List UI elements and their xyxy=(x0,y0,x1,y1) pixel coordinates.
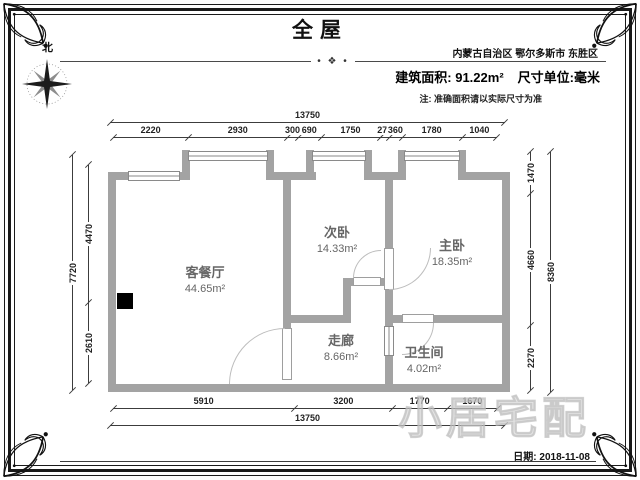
room-area: 14.33m² xyxy=(292,243,382,255)
dim-bottom-segments: 5910 3200 1770 1670 xyxy=(113,395,498,409)
unit-label: 尺寸单位:毫米 xyxy=(518,70,600,85)
dim-value: 2610 xyxy=(83,331,95,355)
window xyxy=(404,151,460,161)
dim-right-total: 8360 xyxy=(550,152,564,392)
room-area: 8.66m² xyxy=(300,351,382,363)
window xyxy=(188,151,268,161)
room-area: 4.02m² xyxy=(388,363,460,375)
wall xyxy=(291,315,343,323)
room-area: 18.35m² xyxy=(407,256,497,268)
room-label-corridor: 走廊 8.66m² xyxy=(300,330,382,363)
wall xyxy=(343,278,353,286)
room-label-master-bedroom: 主卧 18.35m² xyxy=(407,235,497,268)
wall xyxy=(393,315,402,323)
door-leaf xyxy=(402,314,434,323)
door-leaf xyxy=(353,277,381,286)
dim-top-segments: 2220 2930 300 690 1750 270 360 1780 1040 xyxy=(113,124,497,138)
wall xyxy=(343,286,351,323)
divider-line xyxy=(355,61,606,62)
dim-bottom-total: 13750 xyxy=(110,412,505,426)
dim-top-total: 13750 xyxy=(110,109,505,123)
dim-value: 13750 xyxy=(294,110,321,120)
wall xyxy=(385,180,393,248)
dim-value: 4660 xyxy=(525,248,537,272)
wall xyxy=(434,315,502,323)
dim-value: 2220 xyxy=(140,125,162,135)
wall xyxy=(283,180,291,328)
dim-value: 1770 xyxy=(409,396,431,406)
dim-value: 4470 xyxy=(83,222,95,246)
room-name: 卫生间 xyxy=(388,342,460,361)
title-divider: • ❖ • xyxy=(60,55,606,67)
dim-value: 1470 xyxy=(525,161,537,185)
dim-value: 3200 xyxy=(332,396,354,406)
dim-value: 5910 xyxy=(193,396,215,406)
corner-flourish-icon xyxy=(582,2,638,58)
corner-flourish-icon xyxy=(2,422,58,478)
room-name: 走廊 xyxy=(300,330,382,349)
wall xyxy=(108,172,116,392)
building-area-value: 建筑面积: 91.22m² xyxy=(395,70,503,85)
dim-value: 7720 xyxy=(67,260,79,284)
room-label-second-bedroom: 次卧 14.33m² xyxy=(292,222,382,255)
room-name: 主卧 xyxy=(407,235,497,254)
dim-value: 13750 xyxy=(294,413,321,423)
compass-rose-icon xyxy=(19,56,75,112)
room-label-living-dining: 客餐厅 44.65m² xyxy=(155,262,255,295)
dim-value: 690 xyxy=(301,125,318,135)
dim-value: 1670 xyxy=(461,396,483,406)
window xyxy=(312,151,366,161)
dim-left-segments: 4470 2610 xyxy=(88,165,102,383)
divider-ornament-icon: • ❖ • xyxy=(311,56,355,67)
corner-flourish-icon xyxy=(2,2,58,58)
corner-flourish-icon xyxy=(582,422,638,478)
window xyxy=(128,171,180,181)
room-name: 次卧 xyxy=(292,222,382,241)
page-title: 全屋 xyxy=(0,14,640,44)
floorplan-page: 全屋 内蒙古自治区 鄂尔多斯市 东胜区 • ❖ • 建筑面积: 91.22m²尺… xyxy=(0,0,640,480)
divider-line xyxy=(60,61,311,62)
wall xyxy=(108,384,510,392)
dim-value: 1750 xyxy=(340,125,362,135)
wall xyxy=(502,172,510,392)
room-name: 客餐厅 xyxy=(155,262,255,281)
date-label: 日期: 2018-11-08 xyxy=(513,448,590,463)
column xyxy=(117,293,133,309)
dim-value: 1040 xyxy=(468,125,490,135)
wall xyxy=(462,172,510,180)
door-arc xyxy=(229,328,285,384)
accuracy-note: 注: 准确面积请以实际尺寸为准 xyxy=(420,92,543,105)
room-label-bathroom: 卫生间 4.02m² xyxy=(388,342,460,375)
dim-right-segments: 1470 4660 2270 xyxy=(530,152,544,390)
dim-value: 2930 xyxy=(227,125,249,135)
building-area-line: 建筑面积: 91.22m²尺寸单位:毫米 xyxy=(395,67,600,86)
dim-value: 1780 xyxy=(421,125,443,135)
dim-value: 2270 xyxy=(525,346,537,370)
room-area: 44.65m² xyxy=(155,283,255,295)
dim-value: 8360 xyxy=(545,260,557,284)
